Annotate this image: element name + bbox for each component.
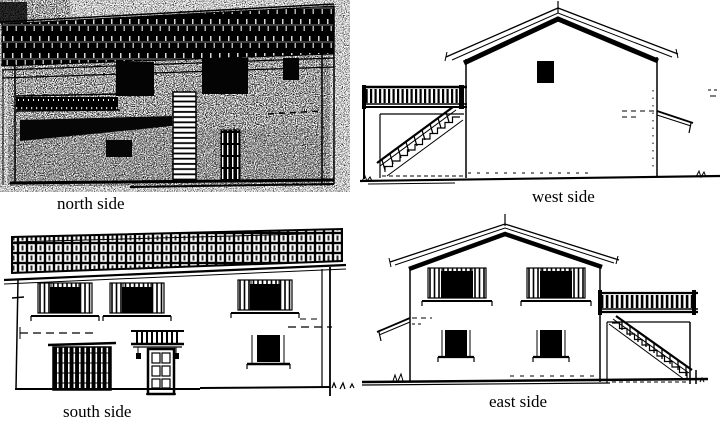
balcony-railing [362, 85, 467, 179]
small-window [247, 335, 290, 369]
slatted-door [221, 130, 240, 180]
garage-door [48, 343, 116, 390]
gable-roof [445, 1, 678, 63]
north-side-label: north side [57, 195, 125, 213]
lower-windows [438, 330, 569, 362]
south-elevation-drawing [0, 223, 360, 446]
attic-window [537, 61, 554, 83]
ground-line [362, 370, 708, 385]
north-elevation-drawing [0, 0, 350, 192]
gable-wall [466, 57, 657, 178]
south-side-label: south side [63, 403, 131, 421]
entrance-door-with-canopy [131, 331, 184, 394]
stair-balusters [382, 112, 449, 170]
balcony-railing [598, 290, 698, 315]
staircase [173, 92, 196, 182]
staircase [377, 107, 464, 178]
side-awning [622, 90, 718, 133]
scanned-elevations-page: north side west side south side east sid… [0, 0, 723, 446]
east-side-label: east side [489, 393, 547, 411]
upper-shuttered-windows [422, 268, 591, 306]
staircase [607, 316, 692, 384]
gable-roof [389, 214, 619, 269]
west-side-label: west side [532, 188, 595, 206]
upper-shuttered-windows [31, 280, 299, 321]
side-awning [377, 318, 432, 341]
west-elevation-drawing [360, 0, 723, 190]
